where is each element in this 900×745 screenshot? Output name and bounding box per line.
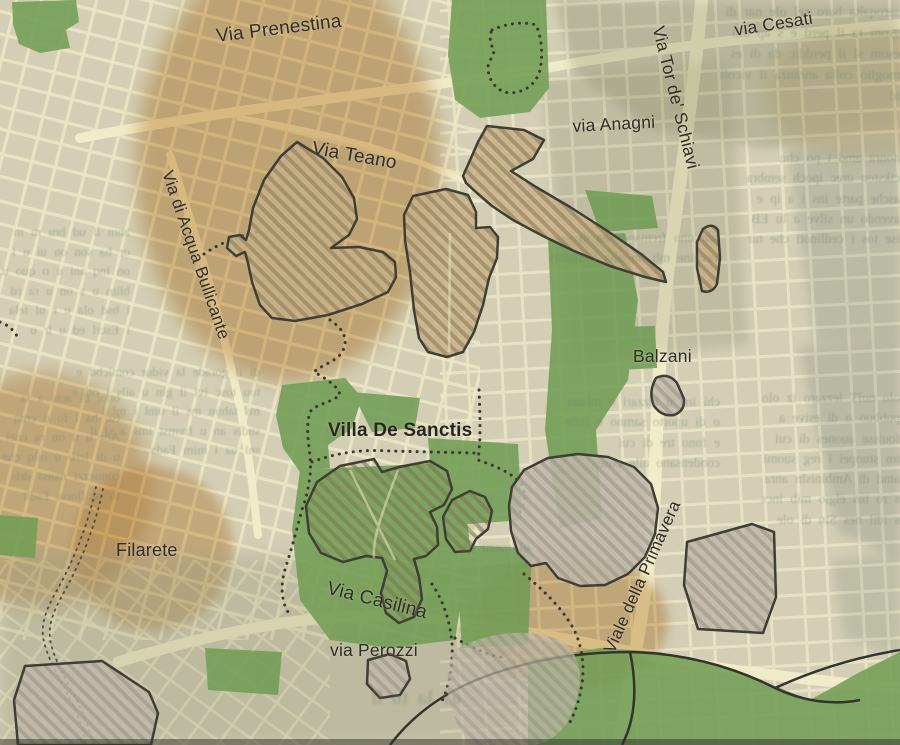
label-via-anagni: via Anagni bbox=[572, 112, 656, 137]
ghost-text-block: am uno fremano sea di ravnine mb im alia… bbox=[540, 228, 718, 328]
ghost-text-block: olo nulT lezzaro iz olo pubbuo o di esiv… bbox=[756, 388, 900, 563]
label-balzani: Balzani bbox=[633, 346, 692, 367]
map: seroqalta baro sel ole nar di grom ra il… bbox=[0, 0, 900, 745]
label-filarete: Filarete bbox=[116, 540, 178, 561]
ghost-text-block: nonra amd i po chu cikston urec ipoch se… bbox=[736, 148, 900, 328]
label-villa-de-sanctis: Villa De Sanctis bbox=[328, 420, 472, 442]
ghost-text-block: chi ins u lezzari o mbina o di uporto sa… bbox=[556, 392, 720, 472]
label-via-perozzi: via Perozzi bbox=[330, 640, 418, 661]
ghost-headline: o1 la to ll bbox=[332, 686, 462, 736]
ghost-text-block: ul rossu qe suolaim bbox=[440, 538, 530, 568]
ghost-text-block: anm il ud bru m m or ba son on ui u i on… bbox=[2, 222, 130, 347]
ghost-text-block: di il gorade la vidur comicbd e tou tosc… bbox=[70, 362, 260, 537]
